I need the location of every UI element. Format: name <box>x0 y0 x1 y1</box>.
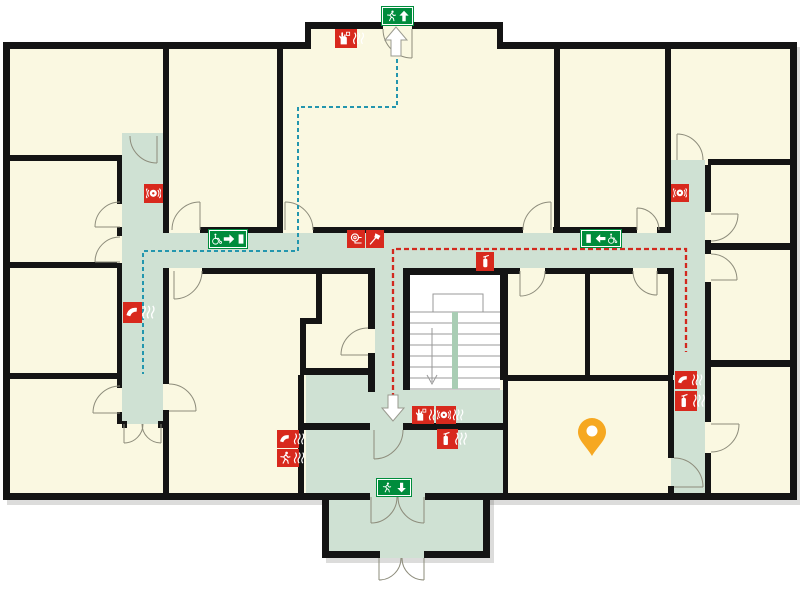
waves-icon <box>292 450 306 466</box>
axe-icon <box>367 231 383 247</box>
corridor-east <box>671 160 705 493</box>
wall-segment <box>368 353 375 392</box>
wheel-icon <box>607 232 619 245</box>
emergency-phone-sign-room <box>277 430 299 448</box>
wall-segment <box>3 493 370 500</box>
corridor-stairs <box>375 268 403 390</box>
extinguisher-sign-landing <box>437 429 458 449</box>
wall-segment <box>668 268 674 375</box>
phone-icon <box>124 303 140 322</box>
wall-segment <box>497 42 797 49</box>
wall-segment <box>711 243 790 250</box>
wall-segment <box>503 375 508 493</box>
manual-call-point-sign-landing <box>412 406 434 424</box>
wall-segment <box>668 486 674 493</box>
wall-segment <box>3 42 10 500</box>
wall-segment <box>117 227 122 236</box>
evacuation-alarm-sign-room <box>277 449 299 467</box>
wall-segment <box>403 268 410 390</box>
wall-segment <box>316 268 322 324</box>
wall-segment <box>412 22 503 29</box>
ext-icon <box>438 430 453 448</box>
run-icon <box>384 9 398 23</box>
wall-segment <box>322 493 329 558</box>
ext-icon <box>676 392 691 410</box>
wall-segment <box>322 551 380 558</box>
wall-segment <box>163 410 169 493</box>
emergency-exit-up-sign <box>382 7 413 25</box>
wall-segment <box>425 493 797 500</box>
wall-segment <box>3 262 117 268</box>
fire-axe-sign <box>366 230 384 248</box>
arrow-down-icon <box>394 481 409 494</box>
waves-icon <box>690 372 704 388</box>
wall-segment <box>305 22 383 29</box>
wall-segment <box>163 49 169 233</box>
waves-icon <box>140 303 156 322</box>
wall-segment <box>117 378 122 388</box>
arrow-left-icon <box>595 232 607 245</box>
emergency-phone-sign-east <box>675 371 697 389</box>
wall-segment <box>665 49 671 233</box>
phone-icon <box>278 431 292 447</box>
wall-segment <box>3 155 122 161</box>
waves-icon <box>453 430 468 448</box>
waves-icon <box>691 392 706 410</box>
stairwell <box>410 275 500 390</box>
wall-segment <box>202 268 306 274</box>
wall-segment <box>668 380 674 458</box>
waves-icon <box>451 407 465 423</box>
wall-segment <box>3 373 120 379</box>
arrow-right-icon <box>223 232 235 246</box>
wall-segment <box>554 49 560 233</box>
wall-segment <box>503 375 673 381</box>
wall-segment <box>424 551 490 558</box>
wall-segment <box>298 423 370 430</box>
wall-segment <box>117 268 122 378</box>
wall-segment <box>657 227 671 233</box>
arrow-up-icon <box>398 9 412 23</box>
wheel-icon <box>211 232 223 246</box>
wall-segment <box>313 227 523 233</box>
door-icon <box>583 232 595 245</box>
wall-segment <box>711 360 790 367</box>
hand-icon <box>413 407 427 423</box>
wall-segment <box>163 268 169 384</box>
bell-icon <box>437 407 451 423</box>
ext-icon <box>477 253 493 270</box>
alarm-sounder-sign-landing <box>436 406 456 424</box>
wall-segment <box>122 421 127 428</box>
wall-segment <box>500 268 508 380</box>
alarm-sounder-sign-left <box>144 184 163 203</box>
evacuation-floor-plan <box>0 0 800 592</box>
wall-segment <box>483 493 490 558</box>
wheelchair-refuge-right-sign <box>209 230 247 248</box>
wall-segment <box>3 42 309 49</box>
wall-segment <box>790 42 797 500</box>
fire-hose-reel-sign <box>347 230 365 248</box>
wall-segment <box>705 453 711 493</box>
hose-icon <box>348 231 364 247</box>
hand-icon <box>336 30 351 47</box>
wall-segment <box>368 274 375 329</box>
wheelchair-refuge-left-sign <box>581 230 621 247</box>
manual-call-point-sign-top <box>335 29 357 48</box>
wall-segment <box>158 421 163 428</box>
wall-segment <box>708 159 790 165</box>
bell-icon <box>145 185 162 202</box>
run-icon <box>379 481 394 494</box>
alarm-sounder-sign-right <box>671 184 689 202</box>
emergency-exit-down-sign <box>377 479 411 496</box>
door <box>402 558 424 580</box>
corridor-west <box>122 133 163 424</box>
extinguisher-sign-east <box>675 391 697 411</box>
run-icon <box>278 450 292 466</box>
wall-segment <box>277 49 283 233</box>
wall-segment <box>705 165 711 212</box>
wall-segment <box>117 161 122 204</box>
bell-icon <box>672 185 688 201</box>
wall-segment <box>585 274 590 375</box>
building-vestibule <box>322 493 490 558</box>
waves-icon <box>351 30 366 47</box>
waves-icon <box>292 431 306 447</box>
phone-icon <box>676 372 690 388</box>
door-icon <box>235 232 247 246</box>
door <box>379 558 401 580</box>
wall-segment <box>300 368 375 375</box>
hall-alcove <box>306 375 375 430</box>
extinguisher-sign-center <box>476 252 494 271</box>
emergency-phone-sign-left <box>123 302 142 323</box>
